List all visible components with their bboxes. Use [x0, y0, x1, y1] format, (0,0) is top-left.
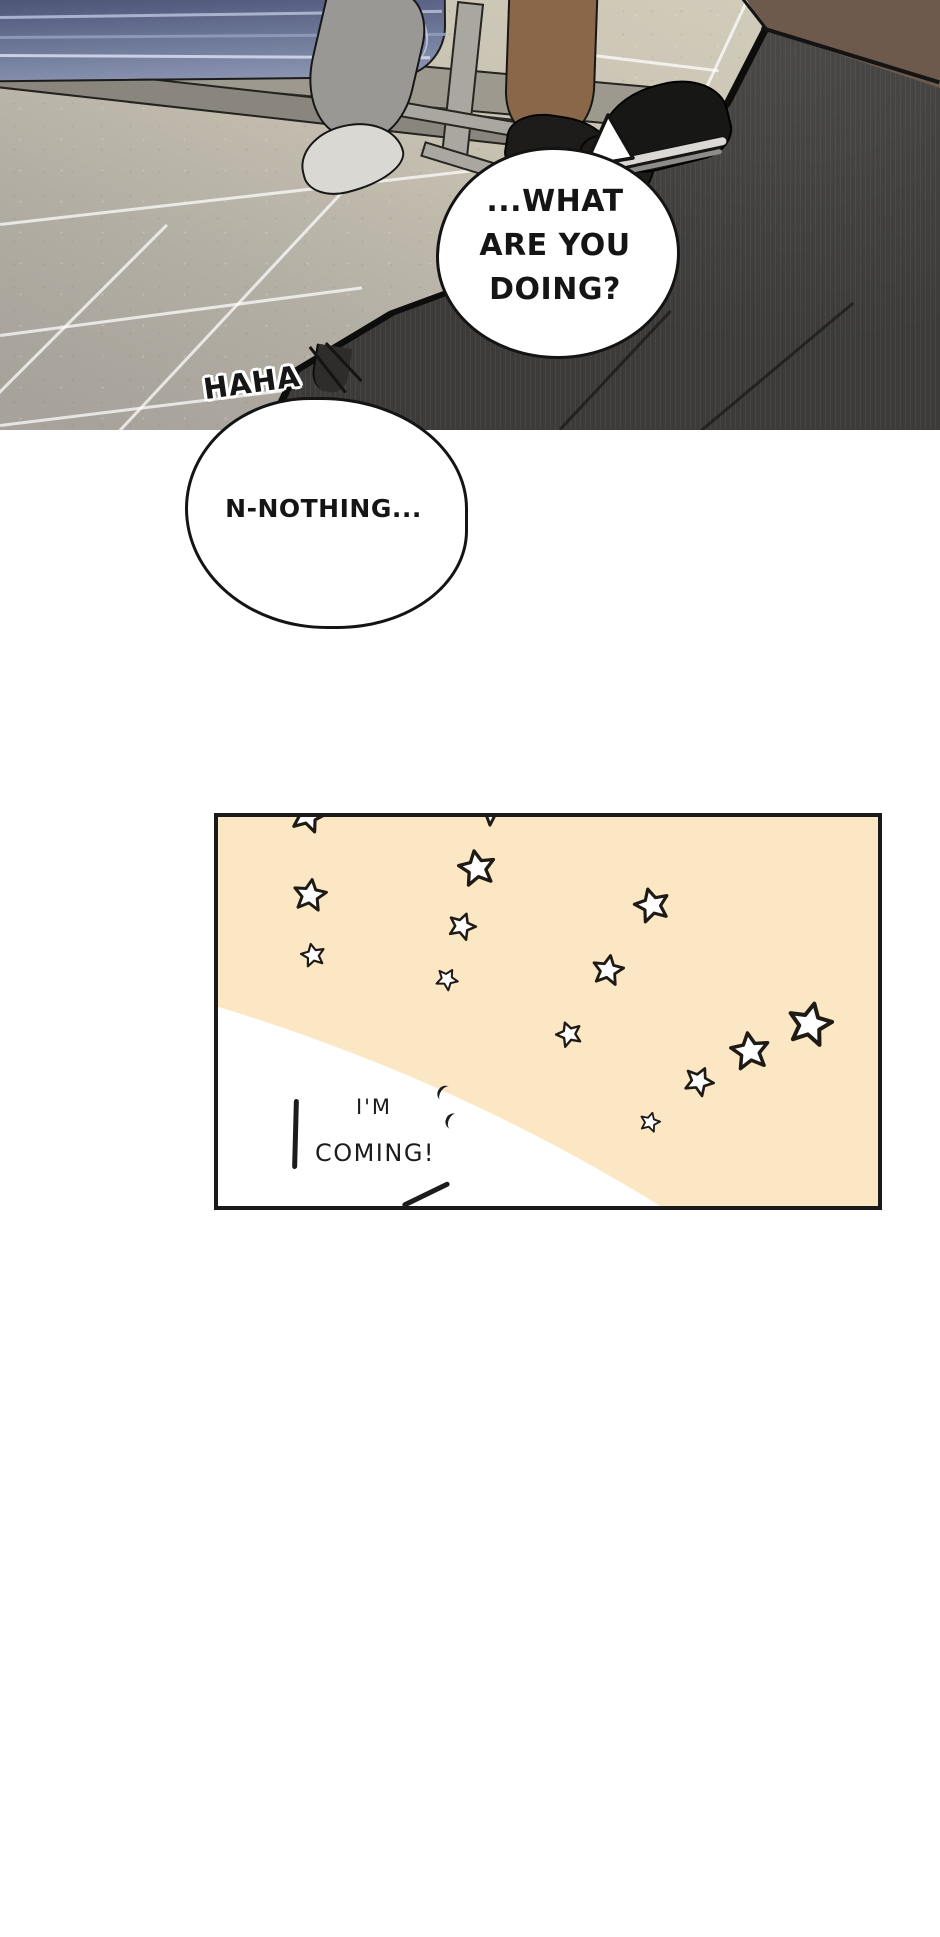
- star-icon: [466, 813, 517, 833]
- star-icon: [298, 940, 329, 971]
- speech-line: DOING?: [436, 268, 674, 312]
- star-icon: [782, 996, 839, 1053]
- star-icon: [678, 1060, 721, 1103]
- star-icon: [629, 882, 676, 929]
- webtoon-page: ...WHAT ARE YOU DOING? HAHA N-NOTHING...…: [0, 0, 940, 1937]
- star-icon: [588, 950, 627, 989]
- star-icon: [285, 813, 332, 838]
- star-icon: [431, 963, 464, 996]
- panel-scene: ...WHAT ARE YOU DOING?: [0, 0, 940, 430]
- star-icon: [637, 1109, 664, 1136]
- speech-line: ...WHAT: [436, 180, 674, 224]
- panel-stars: I'M COMING!: [214, 813, 882, 1210]
- star-icon: [443, 907, 481, 945]
- caption-coming: COMING!: [300, 1139, 450, 1167]
- star-icon: [551, 1016, 587, 1052]
- speech-text-nothing: N-NOTHING...: [185, 494, 462, 523]
- star-icon: [290, 875, 331, 916]
- speech-line: ARE YOU: [436, 224, 674, 268]
- star-icon: [726, 1027, 773, 1074]
- caption-im: I'M: [334, 1095, 414, 1119]
- speech-text-what: ...WHAT ARE YOU DOING?: [436, 180, 674, 312]
- star-icon: [454, 845, 500, 891]
